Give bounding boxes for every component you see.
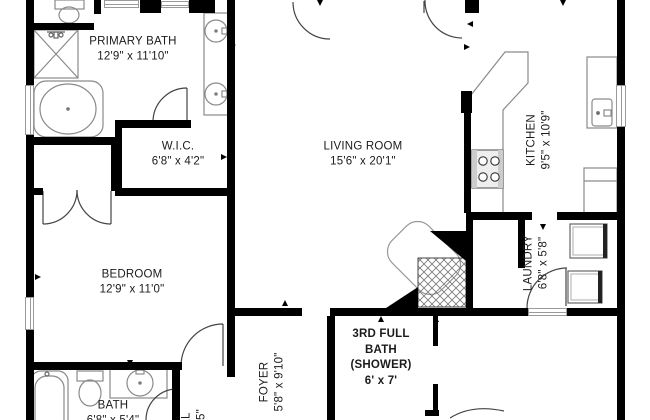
wall <box>330 308 528 316</box>
wall <box>111 145 118 191</box>
room-dims: 6'8" x 4'2" <box>152 154 204 169</box>
wall <box>557 212 617 220</box>
refrigerator-icon <box>584 168 617 215</box>
room-label-foyer: FOYER 5'8" x 9'10" <box>258 352 287 411</box>
wall <box>617 0 625 85</box>
floor-plan: PRIMARY BATH 12'9" x 11'10" W.I.C. 6'8" … <box>0 0 650 420</box>
room-name: BATH <box>87 399 139 414</box>
wall <box>26 23 94 30</box>
washer-icon <box>570 224 607 258</box>
room-name: 3RD FULL <box>350 327 411 343</box>
kitchen-sink-icon <box>592 99 612 126</box>
room-label-laundry: LAUNDRY 6'8" x 5'8" <box>522 235 551 291</box>
wall <box>567 308 617 316</box>
doorway-threshold <box>161 1 189 8</box>
wall <box>26 330 34 420</box>
room-label-bath: BATH 6'8" x 5'4" <box>87 399 139 420</box>
doorway-threshold <box>104 0 139 8</box>
room-dims: 9'5" x 10'9" <box>539 110 554 169</box>
closet-door-arc <box>77 190 111 224</box>
wall <box>433 384 438 412</box>
room-label-bedroom: BEDROOM 12'9" x 11'0" <box>100 268 165 297</box>
wall <box>140 0 161 13</box>
fireplace-icon <box>381 215 467 310</box>
room-dims: 7'5" <box>194 409 209 420</box>
wall <box>433 316 438 346</box>
room-name: W.I.C. <box>152 140 204 155</box>
room-name: KITCHEN <box>525 110 540 169</box>
room-dims: 15'6" x 20'1" <box>324 154 403 169</box>
wall <box>33 188 43 195</box>
toilet-tank <box>55 0 84 9</box>
wall <box>327 316 335 420</box>
door-arc <box>450 409 504 418</box>
shower-faucet-icon <box>47 32 65 38</box>
room-name: (SHOWER) <box>350 358 411 374</box>
room-dims: 6'8" x 5'8" <box>536 235 551 291</box>
wall <box>468 212 532 220</box>
room-label-living-room: LIVING ROOM 15'6" x 20'1" <box>324 140 403 169</box>
room-label-kitchen: KITCHEN 9'5" x 10'9" <box>525 110 554 169</box>
door-arc <box>181 324 223 366</box>
wall <box>115 120 191 128</box>
window <box>616 85 626 127</box>
wall <box>94 0 101 14</box>
wall <box>26 135 34 297</box>
wall <box>26 0 34 85</box>
room-dims: 6'8" x 5'4" <box>87 413 139 420</box>
wall <box>189 0 215 13</box>
room-name: LIVING ROOM <box>324 140 403 155</box>
wall <box>227 0 235 197</box>
room-dims: 5'8" x 9'10" <box>272 352 287 411</box>
wall <box>227 197 235 377</box>
dryer-icon <box>568 271 602 303</box>
window <box>25 297 34 330</box>
stove-icon <box>472 150 503 188</box>
wall <box>115 188 235 196</box>
wall <box>461 91 472 113</box>
closet-door-arc <box>43 190 77 224</box>
room-name: LAUNDRY <box>522 235 537 291</box>
room-label-third-bath: 3RD FULL BATH (SHOWER) 6' x 7' <box>350 327 411 389</box>
room-name: LL <box>180 409 195 420</box>
wall <box>464 112 471 213</box>
door-arc <box>424 0 462 38</box>
wall <box>26 137 118 145</box>
room-name: PRIMARY BATH <box>89 35 176 50</box>
shower-glass-lines <box>34 30 78 78</box>
bathtub-icon <box>31 371 68 420</box>
wall <box>26 362 182 370</box>
door-arc <box>293 2 330 39</box>
wall <box>233 308 302 316</box>
window <box>25 85 34 135</box>
room-dims: 12'9" x 11'10" <box>89 49 176 64</box>
room-label-wic: W.I.C. 6'8" x 4'2" <box>152 140 204 169</box>
bathtub-drain <box>67 108 70 111</box>
door-arc <box>153 88 187 122</box>
wall <box>466 213 473 310</box>
room-name: FOYER <box>258 352 273 411</box>
room-name: BEDROOM <box>100 268 165 283</box>
room-dims: 12'9" x 11'0" <box>100 282 165 297</box>
wall <box>617 127 625 420</box>
room-label-hall: LL 7'5" <box>180 409 209 420</box>
wall <box>465 0 479 13</box>
window <box>528 308 567 316</box>
room-label-primary-bath: PRIMARY BATH 12'9" x 11'10" <box>89 35 176 64</box>
room-name: BATH <box>350 343 411 359</box>
room-dims: 6' x 7' <box>350 374 411 390</box>
wall <box>425 410 439 416</box>
